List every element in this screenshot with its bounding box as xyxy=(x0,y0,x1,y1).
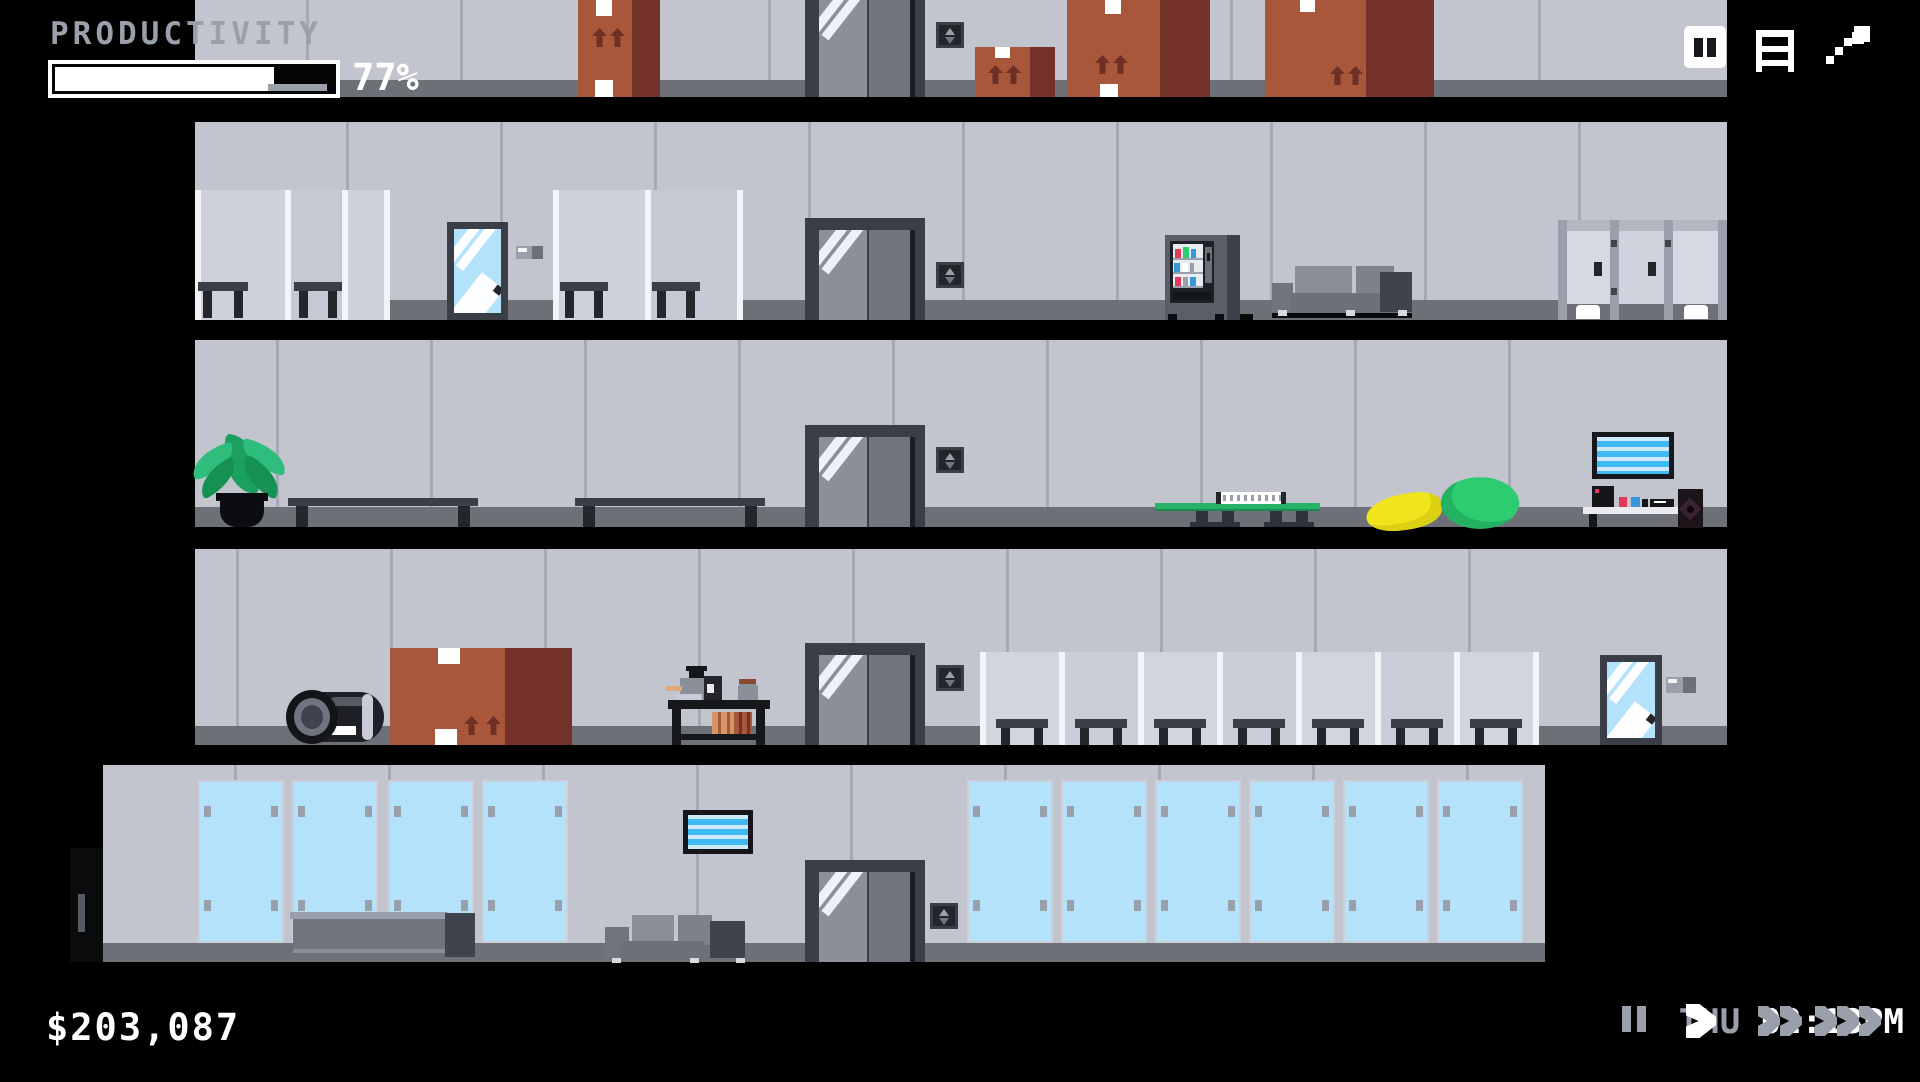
speaker xyxy=(1678,489,1703,528)
elevator-call-panel[interactable] xyxy=(936,262,964,288)
glass-wall-panel xyxy=(1437,780,1523,943)
toilet-stall-door[interactable] xyxy=(1619,231,1664,304)
snack-item xyxy=(1190,277,1196,286)
box-arrow-icon xyxy=(1330,66,1345,85)
office-desk xyxy=(560,282,608,318)
office-desk xyxy=(1391,719,1443,745)
elevator[interactable] xyxy=(805,643,925,745)
media-item-blue xyxy=(1631,497,1640,507)
table-foot xyxy=(1190,522,1240,527)
toilet-stall-post xyxy=(1718,220,1727,320)
elevator-door-left xyxy=(819,872,867,962)
vending-dispenser xyxy=(1173,292,1211,300)
box-tape xyxy=(438,648,460,664)
elevator-shadow xyxy=(910,872,915,962)
elevator[interactable] xyxy=(805,860,925,962)
box-arrow-icon xyxy=(610,28,625,47)
box-arrow-icon xyxy=(988,65,1003,84)
cubicle-partition xyxy=(980,652,986,745)
table-foot xyxy=(1264,522,1314,527)
wall-tv xyxy=(1592,432,1674,479)
elevator-door-right xyxy=(869,230,910,320)
chevron-icon xyxy=(1815,1006,1837,1036)
console-leg xyxy=(1589,514,1597,527)
sofa-seat xyxy=(620,941,704,958)
cubicle-partition xyxy=(285,190,291,320)
box-tape xyxy=(995,47,1010,58)
sofa xyxy=(605,915,745,963)
cubicle-partition xyxy=(1375,652,1381,745)
box-tape xyxy=(1100,84,1118,97)
box-arrow-icon xyxy=(1113,55,1128,74)
cubicle-partition xyxy=(342,190,348,320)
potted-plant xyxy=(188,430,292,530)
elevator[interactable] xyxy=(805,0,925,97)
snack-item xyxy=(1175,277,1181,286)
speed-pause-button[interactable] xyxy=(1622,1006,1648,1032)
glass-wall-panel xyxy=(967,780,1053,943)
pause-icon xyxy=(1707,38,1716,57)
office-desk xyxy=(1233,719,1285,745)
stall-handle xyxy=(1648,262,1656,276)
sofa-foot xyxy=(736,958,745,963)
desk-front xyxy=(293,919,445,952)
list-icon[interactable] xyxy=(1754,28,1796,74)
cubicle-partition xyxy=(1454,652,1460,745)
vending-foot xyxy=(1215,314,1224,320)
box-tape xyxy=(595,80,613,97)
elevator-shadow xyxy=(910,230,915,320)
productivity-label: PRODUCTIVITY xyxy=(50,16,322,52)
cart-shelf xyxy=(676,734,762,740)
stall-hinge xyxy=(1611,240,1617,247)
desk-counter-top xyxy=(290,912,448,919)
barrel-ring xyxy=(362,694,373,740)
media-item-red xyxy=(1619,497,1627,507)
chevron-icon xyxy=(1758,1006,1780,1036)
elevator-door-right xyxy=(869,437,910,527)
elevator-shadow xyxy=(910,437,915,527)
table-net xyxy=(1216,492,1286,504)
toilet-stall-post xyxy=(1610,220,1619,320)
box-tape xyxy=(1105,0,1121,14)
cubicle-partition xyxy=(553,190,559,320)
office-desk xyxy=(1075,719,1127,745)
office-desk xyxy=(294,282,342,318)
ping-pong-table xyxy=(1155,490,1320,527)
box-shaded-side xyxy=(1030,47,1055,97)
box-arrow-icon xyxy=(464,716,479,735)
desk-cabinet xyxy=(445,913,475,957)
cardboard-box xyxy=(1067,0,1210,97)
box-shaded-side xyxy=(1160,0,1210,97)
office-desk xyxy=(652,282,700,318)
glass-wall-panel xyxy=(1343,780,1429,943)
cubicle-partition xyxy=(1296,652,1302,745)
pause-icon xyxy=(1694,38,1703,57)
sofa-foot xyxy=(1398,310,1407,316)
office-glass-door[interactable] xyxy=(447,222,508,320)
stall-hinge xyxy=(1665,240,1671,247)
door-glass xyxy=(1607,662,1655,738)
sofa xyxy=(1272,266,1412,318)
cubicle-partition xyxy=(384,190,390,320)
toilet-base xyxy=(1684,305,1708,319)
coffee-tray xyxy=(676,694,702,700)
snack-item xyxy=(1182,263,1188,272)
sofa-armrest xyxy=(710,921,745,958)
office-desk xyxy=(1154,719,1206,745)
elevator-shadow xyxy=(910,0,915,97)
tv-screen xyxy=(1597,437,1669,474)
speed-fast-forward-button[interactable] xyxy=(1758,1006,1806,1036)
cardboard-box xyxy=(578,0,660,97)
snack-item xyxy=(1191,249,1196,258)
stereo-stack xyxy=(1592,486,1614,507)
supply-box xyxy=(734,712,752,734)
media-console xyxy=(1583,486,1705,528)
snack-item xyxy=(1183,247,1189,258)
sofa-foot xyxy=(1278,310,1287,316)
office-desk xyxy=(1470,719,1522,745)
glass-wall-panel xyxy=(1061,780,1147,943)
game-scene: PRODUCTIVITY 77% $203,087 THU 02:13PM xyxy=(0,0,1920,1080)
snack-item xyxy=(1174,263,1180,272)
office-glass-door[interactable] xyxy=(1600,655,1662,745)
sofa-armrest xyxy=(1380,272,1412,312)
elevator-door-left xyxy=(819,0,867,97)
office-desk xyxy=(996,719,1048,745)
box-tape xyxy=(435,729,457,745)
elevator-door-left xyxy=(819,230,867,320)
supply-box xyxy=(712,712,734,734)
cubicle-partition xyxy=(1138,652,1144,745)
elevator-call-panel[interactable] xyxy=(936,22,964,48)
tv-screen xyxy=(688,815,748,849)
elevator-shadow xyxy=(910,655,915,745)
door-sign xyxy=(1666,677,1696,693)
toilet-base xyxy=(1576,305,1600,319)
elevator-call-panel[interactable] xyxy=(936,665,964,691)
productivity-delta xyxy=(268,84,328,91)
elevator-door-right xyxy=(869,655,910,745)
productivity-percent: 77% xyxy=(352,56,419,99)
cubicle-partition xyxy=(645,190,651,320)
sofa-seat xyxy=(1290,293,1382,312)
cubicle-partition xyxy=(1217,652,1223,745)
elevator-door-left xyxy=(819,437,867,527)
office-desk xyxy=(198,282,248,318)
speed-max-button[interactable] xyxy=(1815,1006,1885,1036)
trend-arrow-icon[interactable] xyxy=(1824,26,1872,68)
door-handle xyxy=(1607,701,1655,738)
toilet-stall-rail xyxy=(1558,220,1727,231)
productivity-fill xyxy=(55,67,274,91)
baseboard xyxy=(195,80,1727,97)
kettle xyxy=(738,684,758,700)
snack-item xyxy=(1175,249,1181,258)
floor-office-upper xyxy=(195,122,1727,320)
box-arrow-icon xyxy=(1348,66,1363,85)
cubicle-partition xyxy=(1533,652,1539,745)
entrance-handle xyxy=(78,894,85,932)
coffee-cart xyxy=(666,661,772,745)
tipped-barrel xyxy=(286,690,386,745)
cubicle-panel xyxy=(348,190,384,320)
glass-wall-panel xyxy=(1249,780,1335,943)
box-arrow-icon xyxy=(486,716,501,735)
toilet-stall-post xyxy=(1558,220,1567,320)
elevator[interactable] xyxy=(805,425,925,527)
elevator-door-right xyxy=(869,0,910,97)
box-shaded-side xyxy=(505,648,572,745)
snack-item xyxy=(1190,263,1194,272)
box-arrow-icon xyxy=(1006,65,1021,84)
pause-icon xyxy=(1622,1006,1631,1032)
elevator-door-left xyxy=(819,655,867,745)
box-shaded-side xyxy=(632,0,660,97)
toilet-stall-post xyxy=(1664,220,1673,320)
toilet-stall-door[interactable] xyxy=(1673,231,1718,304)
chevron-icon xyxy=(1859,1006,1881,1036)
baseboard xyxy=(195,300,1727,320)
elevator-door-right xyxy=(869,872,910,962)
reception-desk xyxy=(290,912,475,957)
vending-machine[interactable] xyxy=(1165,235,1227,320)
vending-side xyxy=(1227,235,1240,320)
barrel-opening-core xyxy=(301,705,323,729)
box-arrow-icon xyxy=(592,28,607,47)
stall-hinge xyxy=(1611,288,1617,295)
stall-handle xyxy=(1594,262,1602,276)
chevron-icon xyxy=(1780,1006,1802,1036)
cardboard-box xyxy=(390,648,572,745)
cart-top xyxy=(668,700,770,709)
glass-wall-panel xyxy=(1155,780,1241,943)
glass-wall-panel xyxy=(198,780,284,943)
bench xyxy=(288,498,478,527)
cardboard-box xyxy=(975,47,1055,97)
chevron-icon xyxy=(1837,1006,1859,1036)
box-tape xyxy=(1300,0,1315,12)
box-arrow-icon xyxy=(1095,55,1110,74)
entrance-door[interactable] xyxy=(70,848,103,962)
door-glass xyxy=(454,229,501,313)
media-player xyxy=(1650,499,1674,507)
box-tape xyxy=(596,0,612,16)
bench xyxy=(575,498,765,527)
sofa-foot xyxy=(612,958,621,963)
door-handle xyxy=(454,272,501,313)
pause-window-button[interactable] xyxy=(1684,26,1726,68)
sofa-foot xyxy=(1346,310,1355,316)
coffee-machine-knob xyxy=(689,666,704,678)
cubicle-partition xyxy=(1059,652,1065,745)
elevator-call-panel[interactable] xyxy=(930,903,958,929)
desk-front-edge xyxy=(293,949,445,953)
elevator[interactable] xyxy=(805,218,925,320)
coffee-machine-front xyxy=(704,676,722,700)
media-item-black xyxy=(1642,499,1648,507)
wall-tv xyxy=(683,810,753,854)
door-sign xyxy=(516,246,543,259)
snack-item xyxy=(1183,277,1188,286)
box-shaded-side xyxy=(1366,0,1434,97)
vending-foot xyxy=(1168,314,1177,320)
cardboard-box xyxy=(1265,0,1434,97)
sofa-back-cushion xyxy=(1295,266,1352,296)
elevator-call-panel[interactable] xyxy=(936,447,964,473)
sofa-foot xyxy=(690,958,699,963)
office-desk xyxy=(1312,719,1364,745)
productivity-bar xyxy=(48,60,340,98)
floor-storage xyxy=(195,0,1727,97)
glass-wall-panel xyxy=(482,780,568,943)
table-top xyxy=(1155,503,1320,511)
toilet-stall-door[interactable] xyxy=(1567,231,1610,304)
money-display: $203,087 xyxy=(46,1006,240,1049)
portafilter-handle xyxy=(666,686,682,691)
pause-icon xyxy=(1637,1006,1646,1032)
cubicle-partition xyxy=(737,190,743,320)
plant-pot xyxy=(220,495,264,527)
